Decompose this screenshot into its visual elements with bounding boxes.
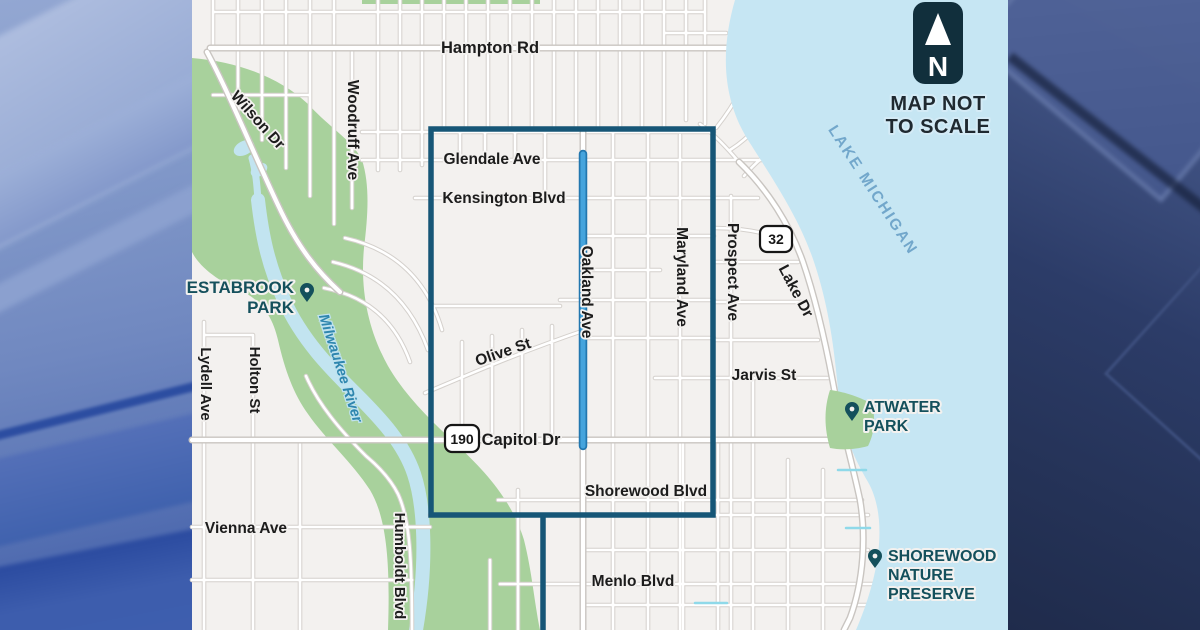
street-label-vienna-ave: Vienna Ave bbox=[205, 520, 288, 537]
nature-preserve-label-line3: PRESERVE bbox=[888, 586, 975, 603]
route-190-number: 190 bbox=[450, 431, 474, 447]
route-32-number: 32 bbox=[768, 231, 784, 247]
route-190-shield: 190 bbox=[445, 425, 479, 452]
street-label-jarvis-st: Jarvis St bbox=[732, 367, 797, 384]
street-label-glendale-ave: Glendale Ave bbox=[443, 151, 540, 168]
nature-preserve-label-line1: SHOREWOOD bbox=[888, 548, 996, 565]
estabrook-park-label-line2: PARK bbox=[247, 298, 295, 317]
atwater-park-label-line1: ATWATER bbox=[864, 399, 941, 416]
street-label-maryland-ave: Maryland Ave bbox=[673, 227, 690, 327]
compass-n-letter: N bbox=[928, 51, 948, 82]
street-label-holton-st: Holton St bbox=[246, 347, 263, 414]
compass-north-icon: N bbox=[913, 2, 963, 84]
street-label-prospect-ave: Prospect Ave bbox=[724, 223, 741, 321]
map-not-to-scale-line1: MAP NOT bbox=[890, 93, 985, 115]
nature-preserve-label-line2: NATURE bbox=[888, 567, 954, 584]
street-label-lydell-ave: Lydell Ave bbox=[197, 347, 214, 420]
street-label-humboldt-blvd: Humboldt Blvd bbox=[391, 513, 408, 620]
street-label-kensington-blvd: Kensington Blvd bbox=[442, 190, 565, 207]
atwater-park-label-line2: PARK bbox=[864, 418, 909, 435]
news-map-graphic: 32 190 Hampton Rd Wilson Dr Woodruff Ave… bbox=[0, 0, 1200, 630]
street-label-woodruff-ave: Woodruff Ave bbox=[344, 80, 361, 181]
street-label-capitol-dr: Capitol Dr bbox=[482, 431, 561, 449]
map-not-to-scale-line2: TO SCALE bbox=[886, 116, 991, 138]
street-label-menlo-blvd: Menlo Blvd bbox=[592, 573, 675, 590]
route-32-shield: 32 bbox=[760, 226, 792, 252]
estabrook-park-label-line1: ESTABROOK bbox=[187, 278, 295, 297]
street-label-oakland-ave: Oakland Ave bbox=[578, 246, 595, 339]
street-label-hampton-rd: Hampton Rd bbox=[441, 39, 539, 57]
park-sliver bbox=[362, 0, 540, 4]
street-map: 32 190 Hampton Rd Wilson Dr Woodruff Ave… bbox=[0, 0, 1200, 630]
street-label-shorewood-blvd: Shorewood Blvd bbox=[585, 483, 707, 500]
